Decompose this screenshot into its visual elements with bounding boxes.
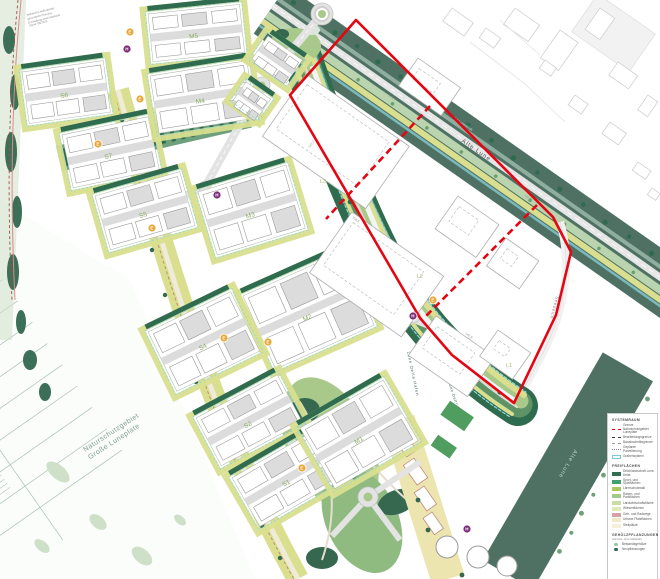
bus-stop-icon: H [409, 312, 417, 320]
block-label-l3: L3 [320, 179, 326, 185]
block-label-s6: S6 [60, 92, 69, 100]
svg-text:E: E [300, 466, 303, 471]
legend-subtitle-plantings: (Hinweis: ohne Maßstab) [612, 538, 655, 541]
legend-item-label: Bearbeitungsgrenze [623, 436, 655, 440]
legend-swatch [612, 487, 621, 491]
legend-item-label: Urbane Platzflächen [623, 518, 655, 522]
block-label-m4: M4 [195, 98, 205, 106]
roundabout-north [311, 3, 333, 25]
legend-swatch [612, 507, 621, 511]
legend-swatch [612, 455, 621, 459]
energy-icon: E [94, 140, 102, 148]
block-label-l1: L1 [506, 363, 512, 369]
site-plan-screenshot: Naturschutzgebiet Große Luneplate [0, 0, 660, 579]
legend-item-label: Landwirtschaftsfläche [623, 502, 655, 506]
legend-item: Grabensystem [612, 455, 655, 459]
legend-item-label: Geplante Parzellierung [623, 446, 655, 453]
bus-stop-icon: H [123, 45, 131, 53]
legend-swatch [612, 429, 621, 430]
legend-section-open-spaces: FREIFLÄCHEN Deichlandschaft Lune-DeltaSp… [612, 464, 655, 528]
energy-icon: E [264, 338, 272, 346]
bus-stop-icon: H [463, 525, 471, 533]
legend-item-label: Grabensystem [623, 455, 655, 459]
legend-item: Deichlandschaft Lune-Delta [612, 470, 655, 477]
legend-item: Geplante Parzellierung [612, 446, 655, 453]
legend-item-label: Bestandsgehölze [622, 543, 655, 547]
legend-swatch [612, 513, 621, 517]
legend-item-label: Bauabschnittsgrenze [623, 441, 655, 445]
svg-text:E: E [128, 30, 131, 35]
legend-item: Rasen- und Parkflächen [612, 493, 655, 500]
legend-item-label: Grenze Naturschutzgebiet Luneplate [623, 424, 655, 435]
legend-swatch [612, 437, 621, 438]
legend-item: Wiesenflächen [612, 507, 655, 511]
legend-item: Lärmschutzwall [612, 487, 655, 491]
legend-item-label: Neupflanzungen [622, 548, 655, 552]
legend-section-symbols: SYSTEMRAUM Grenze Naturschutzgebiet Lune… [612, 418, 655, 459]
legend-panel: SYSTEMRAUM Grenze Naturschutzgebiet Lune… [607, 413, 658, 579]
svg-text:E: E [431, 298, 434, 303]
energy-icon: E [220, 334, 228, 342]
legend-swatch [612, 518, 621, 522]
legend-item-label: Deichlandschaft Lune-Delta [623, 470, 655, 477]
legend-item: Stellplätze [612, 524, 655, 528]
legend-item: Landwirtschaftsfläche [612, 501, 655, 505]
svg-text:E: E [138, 97, 141, 102]
legend-item: Bauabschnittsgrenze [612, 441, 655, 445]
energy-icon: E [429, 296, 437, 304]
block: S6 [16, 52, 116, 129]
legend-swatch [612, 443, 621, 444]
energy-icon: E [136, 95, 144, 103]
energy-icon: E [298, 464, 306, 472]
legend-swatch [612, 472, 621, 476]
legend-item: Sport- und Spielflächen [612, 479, 655, 486]
legend-item-label: Rasen- und Parkflächen [623, 493, 655, 500]
svg-text:E: E [222, 336, 225, 341]
legend-title-plantings: GEHÖLZPFLANZUNGEN [612, 533, 655, 537]
legend-item: Neupflanzungen [612, 548, 655, 552]
legend-item-label: Sport- und Spielflächen [623, 479, 655, 486]
svg-text:E: E [266, 340, 269, 345]
legend-swatch [612, 449, 621, 450]
legend-title-open-spaces: FREIFLÄCHEN [612, 464, 655, 468]
block-label-l2: L2 [417, 274, 423, 280]
svg-text:E: E [150, 226, 153, 231]
legend-item: Bearbeitungsgrenze [612, 436, 655, 440]
roundabout-south [358, 487, 378, 507]
legend-swatch [612, 524, 621, 528]
legend-item-label: Wiesenflächen [623, 507, 655, 511]
svg-text:H: H [411, 314, 414, 319]
energy-icon: E [126, 28, 134, 36]
legend-swatch [612, 494, 621, 498]
bus-stop-icon: H [213, 191, 221, 199]
legend-section-plantings: GEHÖLZPFLANZUNGEN (Hinweis: ohne Maßstab… [612, 533, 655, 552]
legend-swatch [612, 501, 621, 505]
svg-text:H: H [465, 527, 468, 532]
legend-item-label: Lärmschutzwall [623, 487, 655, 491]
svg-text:H: H [215, 193, 218, 198]
svg-text:E: E [96, 142, 99, 147]
legend-item: Geh- und Radwege [612, 513, 655, 517]
map-canvas: Naturschutzgebiet Große Luneplate [0, 0, 660, 579]
legend-item: Urbane Platzflächen [612, 518, 655, 522]
legend-title-symbols: SYSTEMRAUM [612, 418, 655, 422]
legend-item-label: Stellplätze [623, 524, 655, 528]
svg-text:H: H [125, 47, 128, 52]
legend-swatch [614, 543, 618, 547]
legend-swatch [612, 480, 621, 484]
legend-item: Grenze Naturschutzgebiet Luneplate [612, 424, 655, 435]
legend-item: Bestandsgehölze [612, 543, 655, 547]
legend-item-label: Geh- und Radwege [623, 513, 655, 517]
legend-swatch [614, 548, 618, 552]
block-label-m5: M5 [189, 33, 199, 41]
energy-icon: E [148, 224, 156, 232]
